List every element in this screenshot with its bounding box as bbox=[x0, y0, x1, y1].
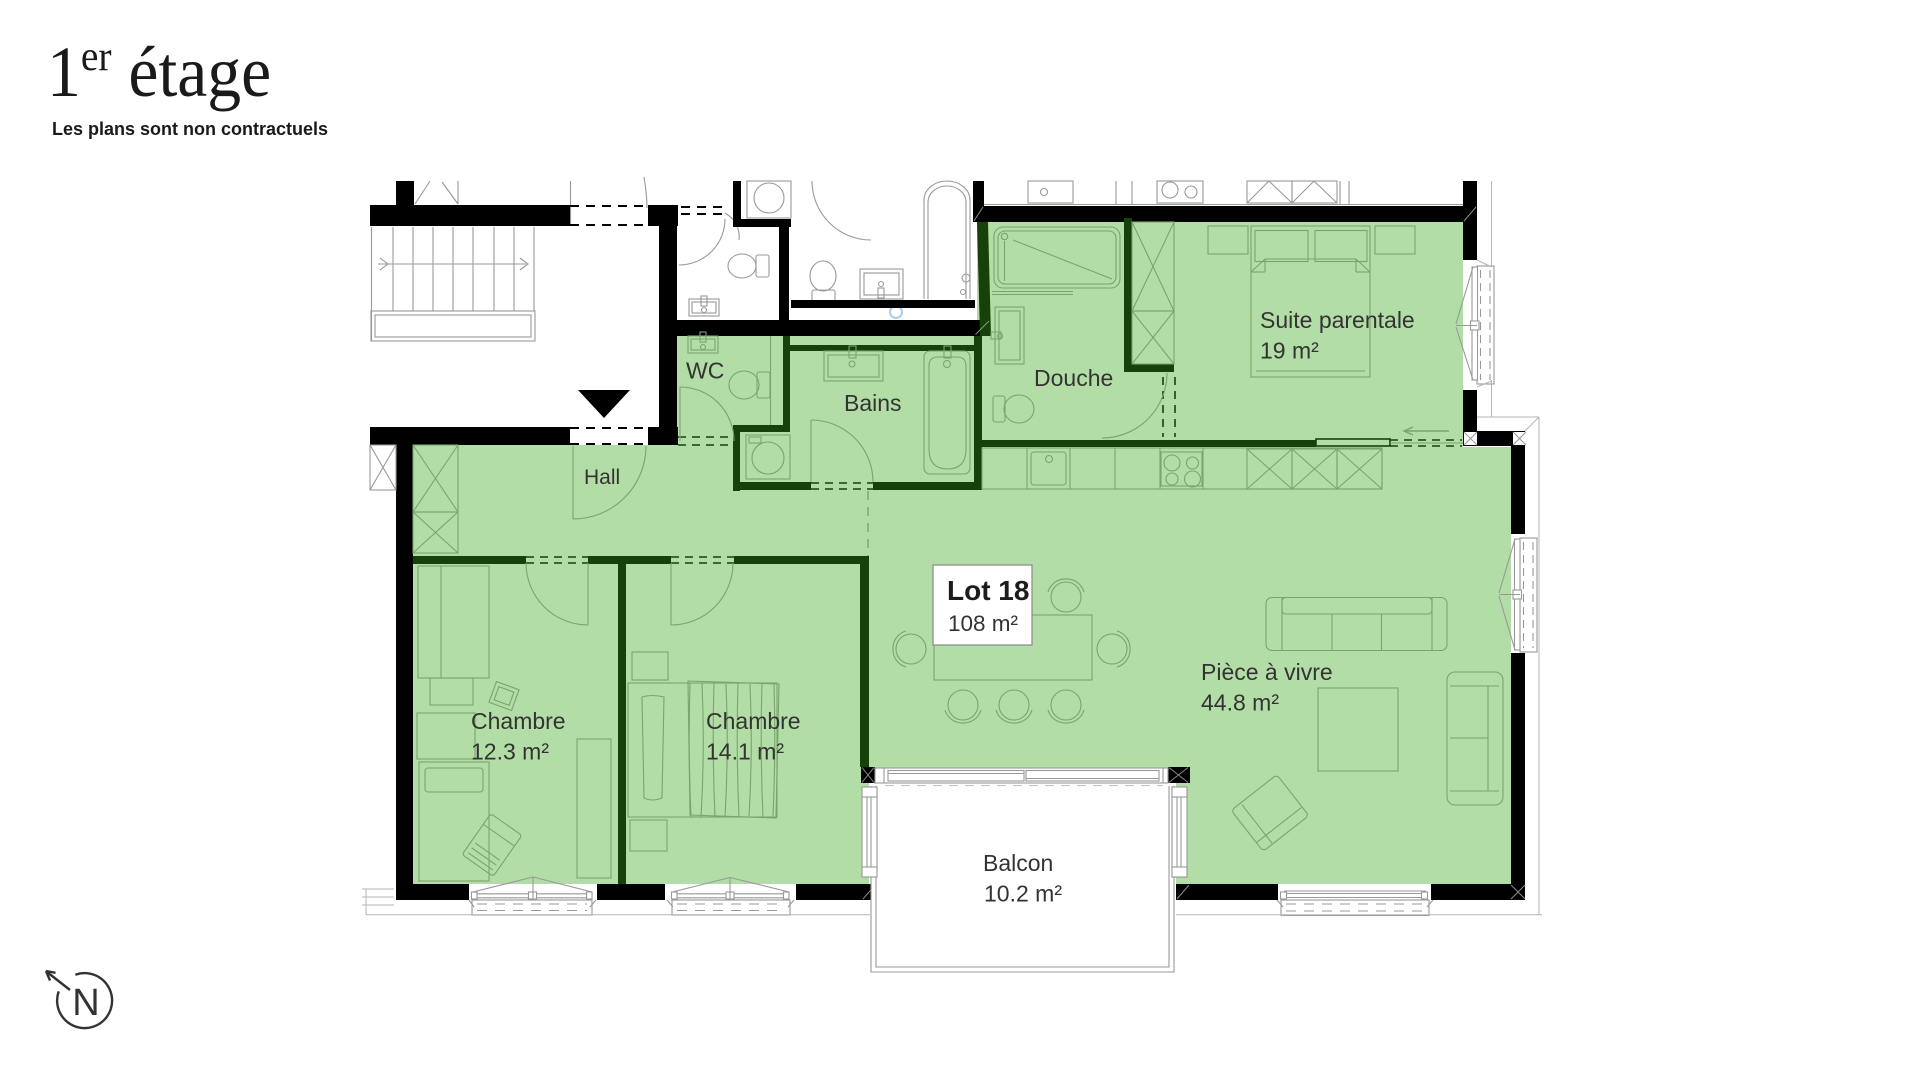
svg-text:12.3 m²: 12.3 m² bbox=[471, 739, 549, 765]
svg-text:10.2 m²: 10.2 m² bbox=[984, 881, 1062, 907]
svg-text:Pièce à vivre: Pièce à vivre bbox=[1201, 659, 1333, 685]
svg-text:Chambre: Chambre bbox=[706, 708, 801, 734]
svg-text:Suite parentale: Suite parentale bbox=[1260, 307, 1415, 333]
svg-text:108 m²: 108 m² bbox=[948, 611, 1019, 636]
svg-text:44.8 m²: 44.8 m² bbox=[1201, 690, 1279, 716]
svg-text:N: N bbox=[72, 982, 99, 1024]
svg-text:Douche: Douche bbox=[1034, 365, 1113, 391]
svg-text:14.1 m²: 14.1 m² bbox=[706, 739, 784, 765]
svg-text:Hall: Hall bbox=[584, 466, 620, 489]
svg-text:19 m²: 19 m² bbox=[1260, 338, 1319, 364]
svg-text:Les plans sont non contractuel: Les plans sont non contractuels bbox=[52, 119, 328, 139]
svg-text:WC: WC bbox=[686, 358, 724, 384]
svg-text:1er étage: 1er étage bbox=[47, 33, 271, 113]
svg-text:Bains: Bains bbox=[844, 390, 902, 416]
svg-text:Chambre: Chambre bbox=[471, 708, 566, 734]
svg-text:Lot 18: Lot 18 bbox=[947, 575, 1029, 606]
svg-text:Balcon: Balcon bbox=[983, 850, 1053, 876]
